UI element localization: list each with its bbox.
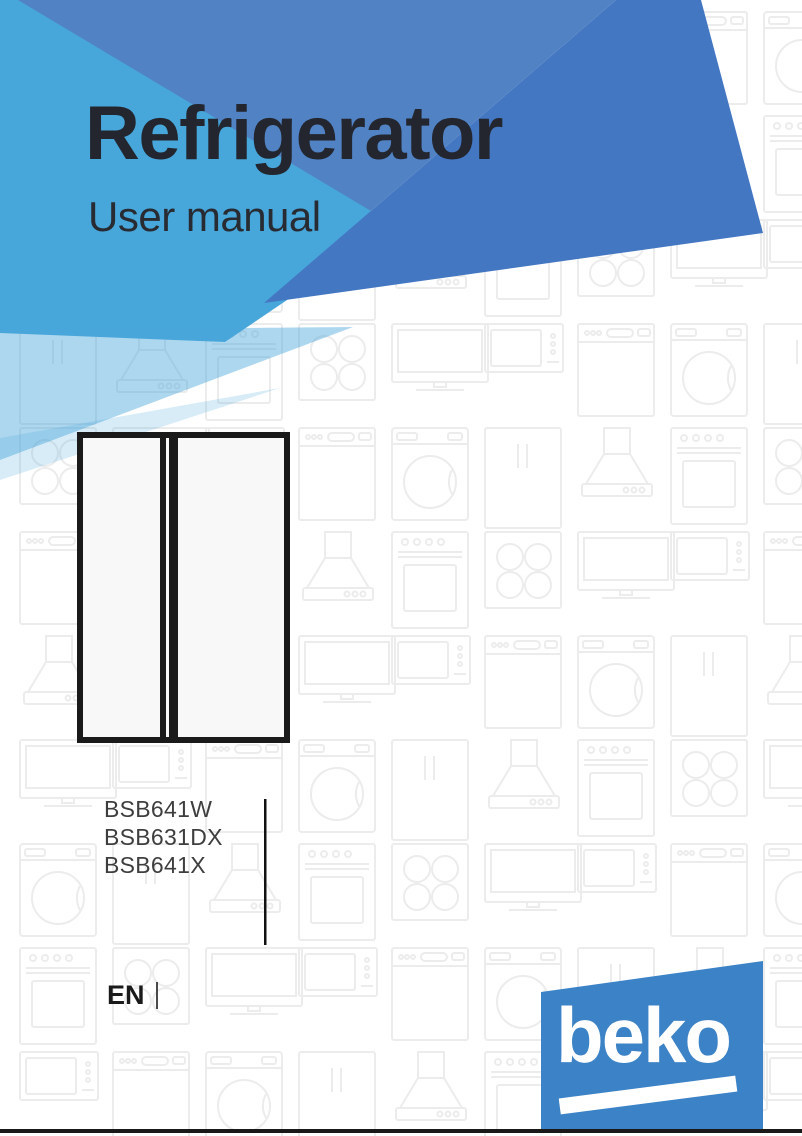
language-indicator: EN: [107, 980, 158, 1010]
manual-cover-page: Refrigerator User manual BSB641W BSB631D…: [0, 0, 802, 1136]
model-number: BSB641X: [104, 851, 223, 879]
page-subtitle: User manual: [88, 194, 321, 240]
language-divider: [156, 982, 158, 1009]
page-title: Refrigerator: [85, 96, 502, 172]
language-code: EN: [107, 980, 145, 1010]
bottom-rule: [0, 1129, 802, 1133]
model-list: BSB641W BSB631DX BSB641X: [104, 795, 223, 879]
model-list-rule: [264, 799, 267, 945]
refrigerator-illustration: [80, 435, 287, 740]
model-number: BSB631DX: [104, 823, 223, 851]
header-banner: [0, 0, 763, 480]
beko-wordmark: beko: [556, 1000, 730, 1070]
model-number: BSB641W: [104, 795, 223, 823]
